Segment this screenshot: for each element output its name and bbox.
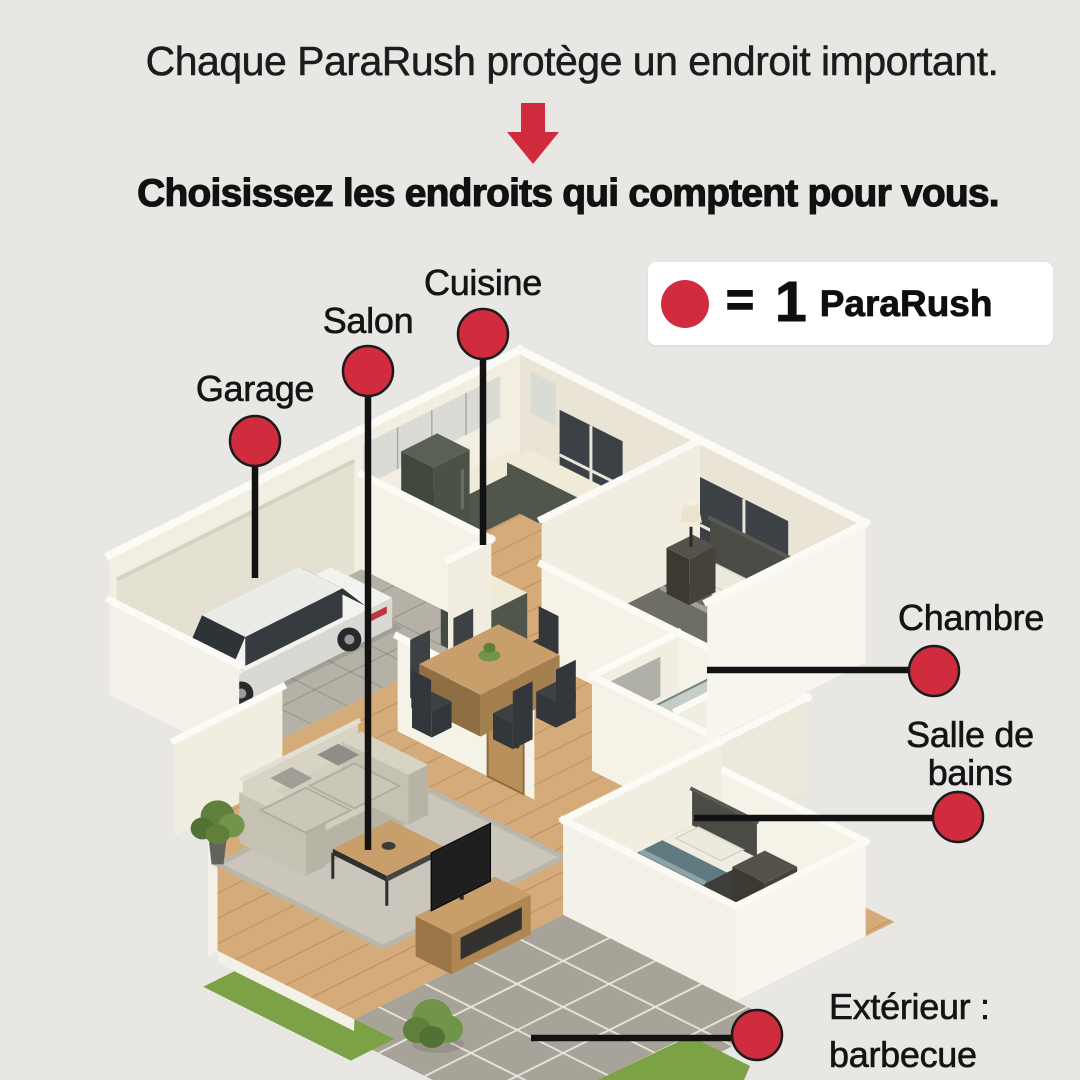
label-exterieur-line2: barbecue [829, 1031, 990, 1079]
label-cuisine: Cuisine [424, 262, 542, 304]
label-exterieur: Extérieur : barbecue [829, 983, 990, 1079]
garage-marker-dot [230, 416, 280, 466]
cuisine-marker-dot [458, 309, 508, 359]
legend-product-name: ParaRush [820, 283, 993, 325]
pararush-dot-icon [661, 280, 709, 328]
salon-marker-dot [343, 346, 393, 396]
callout-overlay [0, 0, 1080, 1080]
label-exterieur-line1: Extérieur : [829, 983, 990, 1031]
label-salle-line2: bains [906, 754, 1034, 792]
legend-equals: = [726, 273, 754, 328]
label-salle-de-bains: Salle de bains [906, 716, 1034, 792]
label-salon: Salon [323, 300, 414, 342]
legend-box: = 1 ParaRush [648, 262, 1053, 345]
exterieur-marker-dot [732, 1010, 782, 1060]
chambre-marker-dot [909, 646, 959, 696]
infographic-canvas: Chaque ParaRush protège un endroit impor… [0, 0, 1080, 1080]
label-salle-line1: Salle de [906, 716, 1034, 754]
down-arrow-icon [507, 103, 559, 164]
label-chambre: Chambre [898, 597, 1044, 639]
legend-quantity: 1 [775, 269, 807, 335]
label-garage: Garage [196, 368, 314, 410]
salle-marker-dot [933, 792, 983, 842]
